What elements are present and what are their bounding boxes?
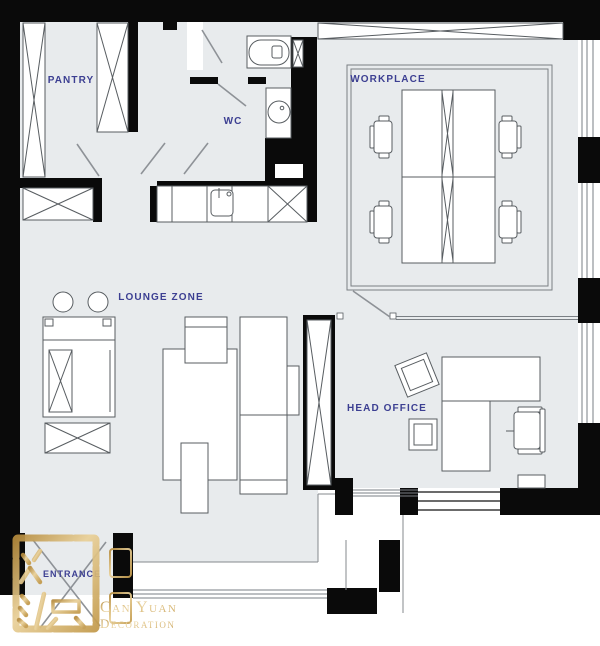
window-icon: [578, 40, 600, 137]
cabinet-icon: [23, 188, 93, 220]
pantry-label: PANTRY: [48, 75, 95, 86]
wardrobe-icon: [97, 23, 128, 132]
wardrobe-icon: [23, 23, 45, 177]
wall-niche: [275, 164, 303, 178]
door-jamb: [390, 313, 396, 319]
door-jamb: [337, 313, 343, 319]
side-table-icon: [409, 419, 437, 450]
toilet-icon: [247, 36, 291, 68]
window-icon: [578, 323, 600, 423]
window-icon: [418, 488, 500, 515]
windows-right: [578, 40, 600, 423]
stool-icon: [88, 292, 108, 312]
washbasin-icon: [266, 88, 291, 138]
window-icon: [133, 590, 327, 598]
workplace-label: WORKPLACE: [350, 74, 425, 85]
kitchen-unit-icon: [43, 317, 115, 417]
cabinet-icon: [518, 475, 545, 488]
head-office-label: HEAD OFFICE: [347, 403, 427, 414]
wardrobe-icon: [307, 320, 331, 485]
lounge-label: LOUNGE ZONE: [118, 292, 203, 303]
window-icon: [578, 183, 600, 278]
doorway-gap: [187, 22, 203, 70]
floor-plan-canvas: PANTRY WC WORKPLACE LOUNGE ZONE HEAD OFF…: [0, 0, 600, 646]
desk-cluster-icon: [402, 90, 495, 263]
brand-suffix-text: Decoration: [100, 616, 175, 631]
cabinet-icon: [318, 23, 563, 39]
coffee-table-icon: [185, 317, 227, 363]
cabinet-icon: [293, 40, 303, 67]
seal-character-yuan: [19, 594, 91, 629]
stool-icon: [53, 292, 73, 312]
floor-plan: PANTRY WC WORKPLACE LOUNGE ZONE HEAD OFF…: [0, 0, 600, 646]
cabinet-icon: [45, 423, 110, 453]
wc-label: WC: [224, 116, 243, 127]
brand-name-text: Can Yuan: [100, 599, 177, 616]
kitchen-sink-icon: [211, 188, 233, 216]
